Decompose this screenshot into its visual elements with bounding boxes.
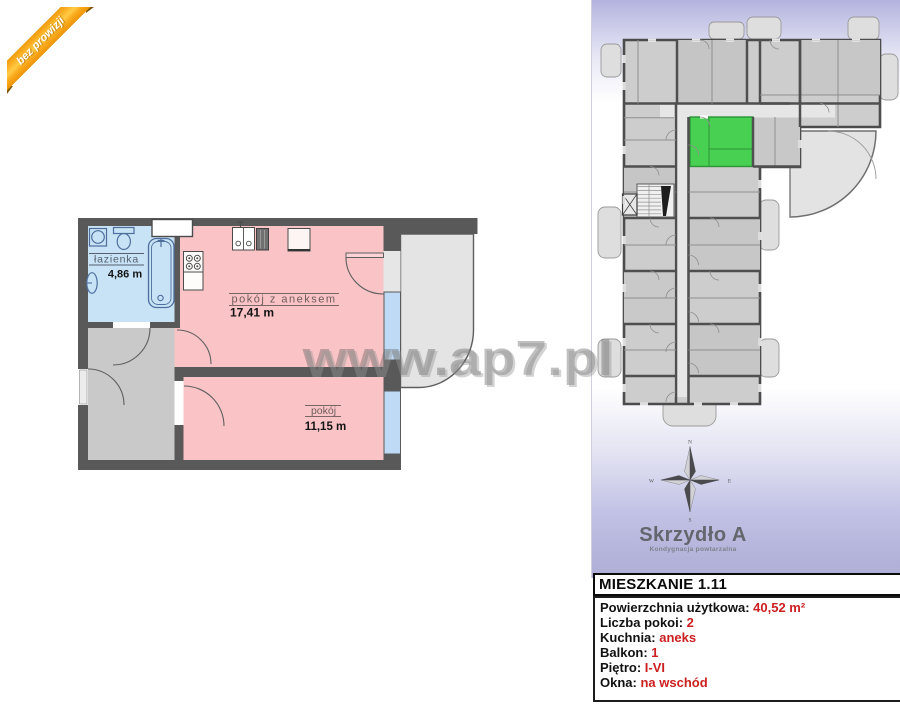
svg-text:pokój: pokój bbox=[311, 405, 336, 417]
svg-text:łazienka: łazienka bbox=[94, 254, 139, 266]
svg-text:W: W bbox=[649, 479, 655, 485]
svg-text:N: N bbox=[688, 440, 692, 446]
svg-text:pokój z aneksem: pokój z aneksem bbox=[231, 294, 336, 306]
svg-text:17,41 m: 17,41 m bbox=[230, 306, 274, 320]
svg-text:4,86 m: 4,86 m bbox=[108, 269, 142, 281]
svg-text:11,15 m: 11,15 m bbox=[305, 421, 347, 433]
svg-text:E: E bbox=[728, 479, 732, 485]
svg-text:S: S bbox=[688, 518, 691, 524]
